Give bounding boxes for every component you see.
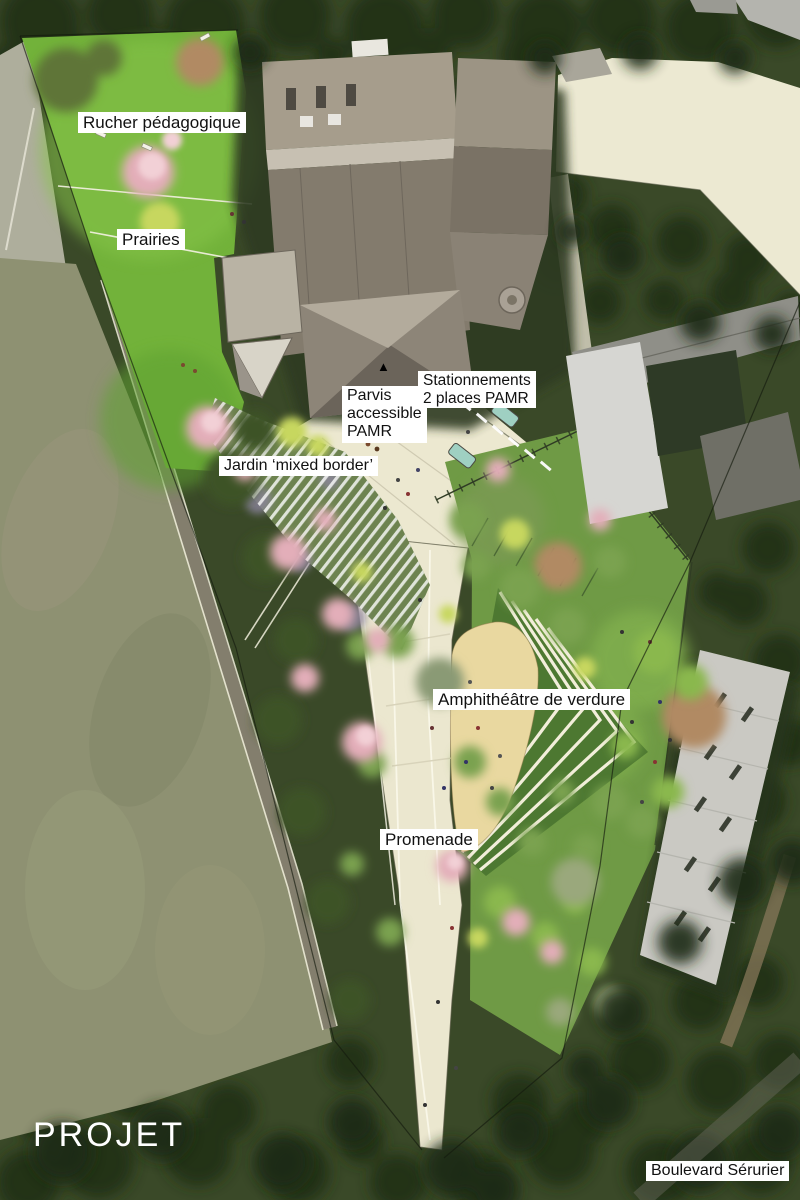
- label-line: Parvis: [347, 387, 422, 405]
- label-boulevard-serurier: Boulevard Sérurier: [646, 1161, 789, 1181]
- parvis-location-marker-icon: ▲: [377, 360, 390, 373]
- label-amphitheatre-de-verdure: Amphithéâtre de verdure: [433, 689, 630, 710]
- label-line: accessible: [347, 405, 422, 423]
- label-parvis-accessible-pamr: Parvis accessible PAMR: [342, 386, 427, 443]
- label-prairies: Prairies: [117, 229, 185, 250]
- label-promenade: Promenade: [380, 829, 478, 850]
- label-stationnements-pamr: Stationnements 2 places PAMR: [418, 371, 536, 408]
- label-line: 2 places PAMR: [423, 390, 531, 408]
- landscape-plan-canvas: Rucher pédagogique Prairies ▲ Parvis acc…: [0, 0, 800, 1200]
- label-line: Stationnements: [423, 372, 531, 390]
- aerial-plan-graphic: [0, 0, 800, 1200]
- label-jardin-mixed-border: Jardin ‘mixed border’: [219, 456, 378, 476]
- label-rucher-pedagogique: Rucher pédagogique: [78, 112, 246, 133]
- page-title: PROJET: [33, 1116, 185, 1155]
- label-line: PAMR: [347, 423, 422, 441]
